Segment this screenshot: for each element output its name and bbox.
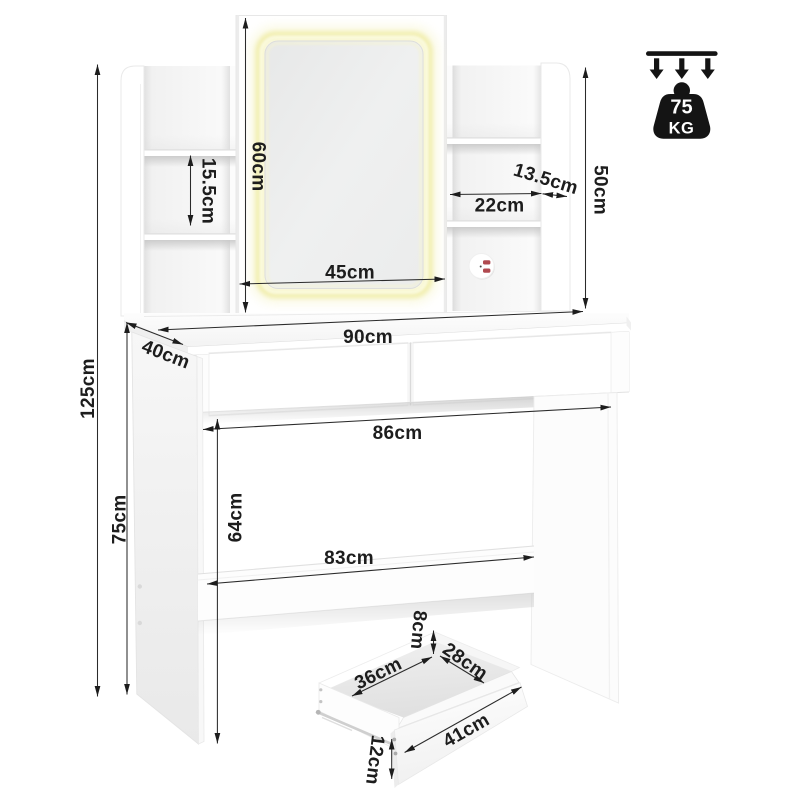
svg-text:15.5cm: 15.5cm (198, 158, 219, 224)
svg-text:KG: KG (669, 120, 695, 138)
svg-text:8cm: 8cm (406, 610, 430, 651)
svg-text:50cm: 50cm (590, 165, 611, 215)
svg-text:64cm: 64cm (225, 493, 246, 543)
svg-text:125cm: 125cm (78, 358, 99, 419)
svg-text:60cm: 60cm (248, 142, 269, 192)
svg-text:83cm: 83cm (324, 548, 374, 569)
svg-text:90cm: 90cm (343, 327, 393, 348)
svg-text:75cm: 75cm (109, 495, 130, 545)
svg-text:45cm: 45cm (325, 262, 375, 283)
svg-text:75: 75 (670, 97, 692, 119)
svg-text:86cm: 86cm (373, 423, 423, 444)
svg-text:22cm: 22cm (475, 195, 525, 216)
